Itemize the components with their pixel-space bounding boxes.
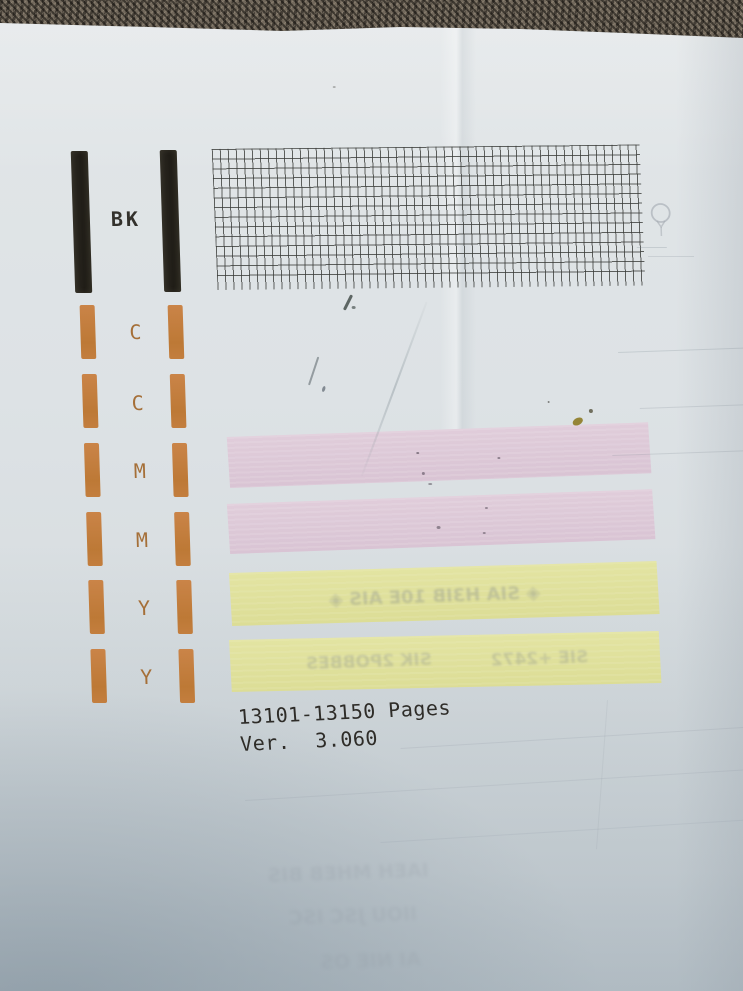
page-counter: 13101-13150 Pages <box>237 695 452 729</box>
scratch-mark <box>308 357 319 386</box>
color-label-c1: C <box>123 320 148 344</box>
orange-segment <box>170 374 187 428</box>
ink-speck <box>321 386 326 393</box>
ink-speck <box>483 532 486 534</box>
magenta-band-1 <box>227 422 652 488</box>
orange-segment <box>172 443 189 497</box>
showthrough-dash <box>637 247 667 248</box>
ink-speck <box>416 452 419 454</box>
ink-speck <box>548 401 550 403</box>
showthrough-rule-line <box>245 769 743 801</box>
color-label-c2: C <box>125 391 150 415</box>
showthrough-rule-line <box>640 404 743 409</box>
ink-speck <box>485 507 488 509</box>
black-bar-right <box>160 150 181 292</box>
showthrough-rule-line <box>596 700 608 849</box>
color-label-y1: Y <box>132 596 157 620</box>
ink-speck <box>333 86 336 88</box>
printed-content: BK C <box>0 0 743 991</box>
showthrough-rule-line <box>618 347 743 353</box>
orange-segment <box>82 374 99 428</box>
orange-segment <box>178 649 195 703</box>
footer-text: 13101-13150 Pages Ver. 3.060 <box>237 694 454 758</box>
orange-segment <box>86 512 103 566</box>
test-page-paper: BK C <box>0 0 743 991</box>
orange-segment <box>84 443 101 497</box>
showthrough-text: IIOU JSC ISC <box>288 903 418 929</box>
black-bar-left <box>71 151 92 293</box>
orange-segment <box>80 305 97 359</box>
orange-segment <box>176 580 193 634</box>
black-section-label: BK <box>111 207 142 231</box>
ink-speck <box>428 483 432 485</box>
showthrough-text: SIE +2472 <box>490 647 589 670</box>
magenta-band-2 <box>227 489 656 554</box>
orange-segment <box>174 512 191 566</box>
showthrough-text: AI NIE OS <box>320 948 422 974</box>
showthrough-rule-line <box>380 819 743 843</box>
color-label-y2: Y <box>134 665 159 689</box>
color-label-m1: M <box>127 459 152 483</box>
color-label-m2: M <box>130 528 155 552</box>
showthrough-text: IAEH MHEB BIS <box>267 859 430 887</box>
orange-segment <box>90 649 107 703</box>
photo-background-carpet: BK C <box>0 0 743 991</box>
orange-segment <box>88 580 105 634</box>
version-label: Ver. 3.060 <box>239 726 378 756</box>
nozzle-check-grid <box>212 145 646 290</box>
orange-segment <box>168 305 185 359</box>
ink-speck <box>437 526 441 529</box>
ink-speck <box>589 409 593 413</box>
ink-speck <box>497 457 500 459</box>
ink-speck <box>422 472 425 475</box>
showthrough-balloon-icon <box>646 201 675 245</box>
ink-speck <box>352 306 356 309</box>
yellow-band-2 <box>229 631 661 692</box>
showthrough-dash <box>648 256 694 257</box>
